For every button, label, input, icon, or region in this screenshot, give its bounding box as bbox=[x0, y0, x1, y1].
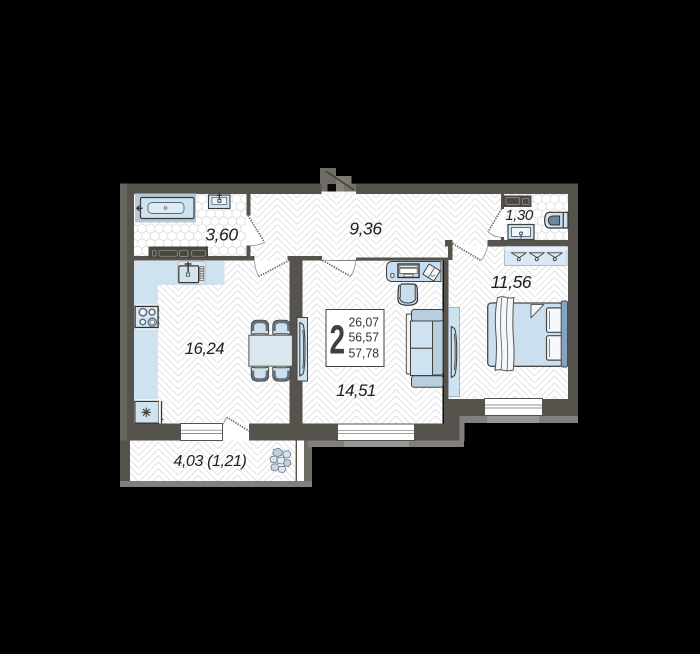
svg-text:26,07: 26,07 bbox=[349, 316, 380, 330]
svg-text:3,60: 3,60 bbox=[205, 225, 238, 245]
svg-text:11,56: 11,56 bbox=[491, 272, 532, 292]
svg-text:1,30: 1,30 bbox=[505, 207, 534, 224]
svg-text:16,24: 16,24 bbox=[185, 340, 225, 358]
svg-text:56,57: 56,57 bbox=[349, 331, 380, 345]
svg-text:2: 2 bbox=[330, 317, 346, 363]
svg-text:57,78: 57,78 bbox=[349, 347, 380, 361]
svg-text:9,36: 9,36 bbox=[349, 219, 382, 239]
svg-text:14,51: 14,51 bbox=[336, 381, 376, 400]
svg-text:4,03 (1,21): 4,03 (1,21) bbox=[174, 453, 247, 470]
